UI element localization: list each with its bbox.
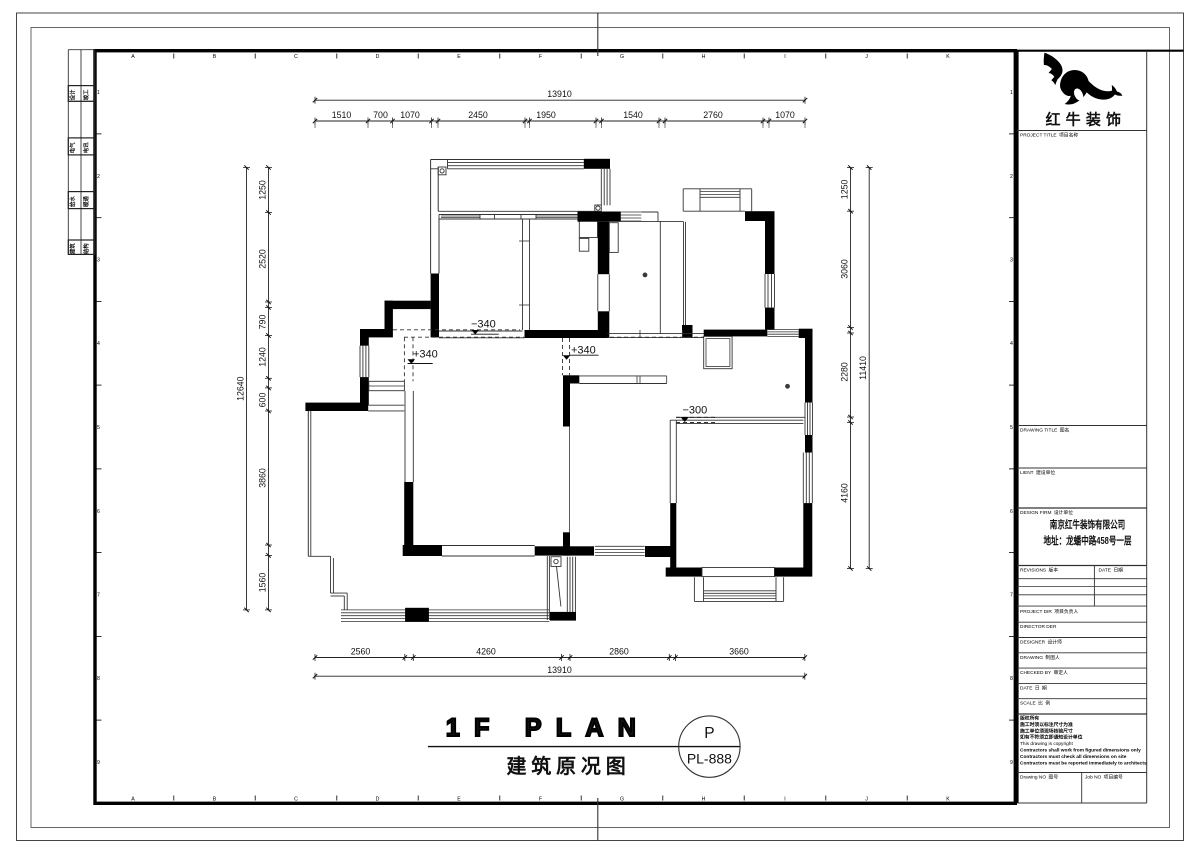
svg-text:Drawing NO 图号: Drawing NO 图号 xyxy=(1020,775,1058,781)
svg-text:7: 7 xyxy=(97,593,100,599)
svg-text:DRAWING TITLE 图名: DRAWING TITLE 图名 xyxy=(1020,427,1070,434)
svg-text:1: 1 xyxy=(97,90,100,96)
svg-text:+340: +340 xyxy=(571,344,596,356)
svg-text:红 牛 装 饰: 红 牛 装 饰 xyxy=(1045,111,1121,129)
svg-text:版权所有: 版权所有 xyxy=(1020,715,1039,722)
svg-text:2760: 2760 xyxy=(703,110,723,120)
svg-text:1540: 1540 xyxy=(623,110,643,120)
svg-text:600: 600 xyxy=(258,393,268,408)
svg-text:3: 3 xyxy=(97,258,100,264)
svg-text:2: 2 xyxy=(1010,174,1013,180)
svg-text:设计: 设计 xyxy=(69,89,77,100)
svg-text:1950: 1950 xyxy=(536,110,556,120)
svg-text:5: 5 xyxy=(97,425,100,431)
svg-text:I: I xyxy=(784,797,785,803)
svg-text:1250: 1250 xyxy=(840,180,850,200)
svg-text:3660: 3660 xyxy=(729,647,749,657)
svg-text:施工单位须现场核验尺寸: 施工单位须现场核验尺寸 xyxy=(1020,727,1073,734)
svg-text:4160: 4160 xyxy=(840,483,850,503)
svg-text:Contractors must be reported i: Contractors must be reported immediately… xyxy=(1020,760,1147,766)
svg-text:11410: 11410 xyxy=(858,356,868,380)
svg-text:C: C xyxy=(294,54,298,60)
svg-text:2280: 2280 xyxy=(840,362,850,382)
svg-text:1240: 1240 xyxy=(258,347,268,367)
svg-text:Contractors shall work from fi: Contractors shall work from figured dime… xyxy=(1020,748,1141,754)
svg-text:结构: 结构 xyxy=(82,243,90,254)
svg-text:700: 700 xyxy=(373,110,388,120)
svg-text:4260: 4260 xyxy=(476,647,496,657)
svg-text:2450: 2450 xyxy=(468,110,488,120)
svg-text:DIRECTOR DER: DIRECTOR DER xyxy=(1020,624,1057,630)
svg-text:E: E xyxy=(457,54,461,60)
svg-text:G: G xyxy=(620,797,624,803)
svg-text:如有不符须立即通知设计单位: 如有不符须立即通知设计单位 xyxy=(1020,734,1083,741)
svg-text:Job NO 项目编号: Job NO 项目编号 xyxy=(1085,774,1123,781)
svg-text:6: 6 xyxy=(97,509,100,515)
svg-text:DRAWING 制图人: DRAWING 制图人 xyxy=(1020,654,1060,661)
svg-text:8: 8 xyxy=(97,676,100,682)
svg-text:J: J xyxy=(865,797,868,803)
svg-text:PL-888: PL-888 xyxy=(687,751,732,767)
svg-text:1070: 1070 xyxy=(400,110,420,120)
svg-text:3060: 3060 xyxy=(840,259,850,279)
svg-text:F: F xyxy=(539,797,542,803)
svg-text:A: A xyxy=(131,797,135,803)
svg-text:G: G xyxy=(620,54,624,60)
svg-text:1: 1 xyxy=(1010,90,1013,96)
svg-text:1250: 1250 xyxy=(258,180,268,200)
svg-text:竣工: 竣工 xyxy=(82,89,90,100)
svg-text:D: D xyxy=(376,54,380,60)
svg-text:DESIGNER 设计师: DESIGNER 设计师 xyxy=(1020,639,1062,646)
svg-text:1F PLAN: 1F PLAN xyxy=(446,714,650,742)
svg-text:3860: 3860 xyxy=(258,468,268,488)
svg-text:790: 790 xyxy=(258,315,268,330)
svg-text:DESIGN FIRM 设计单位: DESIGN FIRM 设计单位 xyxy=(1020,509,1073,516)
svg-text:P: P xyxy=(704,725,714,742)
svg-text:LIENT 建设单位: LIENT 建设单位 xyxy=(1020,469,1055,476)
svg-text:2520: 2520 xyxy=(258,249,268,269)
svg-text:H: H xyxy=(702,797,706,803)
svg-text:12640: 12640 xyxy=(236,376,246,401)
svg-text:2860: 2860 xyxy=(609,647,629,657)
svg-text:1070: 1070 xyxy=(775,110,795,120)
svg-text:B: B xyxy=(213,54,217,60)
svg-text:−300: −300 xyxy=(683,405,708,417)
svg-text:4: 4 xyxy=(97,341,100,347)
svg-text:5: 5 xyxy=(1010,425,1013,431)
svg-text:REVISIONS 版本: REVISIONS 版本 xyxy=(1020,567,1058,574)
svg-text:F: F xyxy=(539,54,542,60)
svg-text:电讯: 电讯 xyxy=(82,142,90,153)
svg-text:南京红牛装饰有限公司: 南京红牛装饰有限公司 xyxy=(1050,518,1125,531)
svg-text:9: 9 xyxy=(97,760,100,766)
svg-text:This drawing is copyright: This drawing is copyright xyxy=(1020,741,1073,747)
svg-text:建筑: 建筑 xyxy=(69,243,77,255)
svg-text:B: B xyxy=(213,797,217,803)
svg-text:2: 2 xyxy=(97,174,100,180)
svg-text:DATE 日期: DATE 日期 xyxy=(1099,568,1124,574)
svg-text:7: 7 xyxy=(1010,593,1013,599)
svg-text:SCALE 比 例: SCALE 比 例 xyxy=(1020,700,1050,707)
svg-text:C: C xyxy=(294,797,298,803)
svg-text:H: H xyxy=(702,54,706,60)
svg-text:6: 6 xyxy=(1010,509,1013,515)
svg-text:D: D xyxy=(376,797,380,803)
svg-text:3: 3 xyxy=(1010,258,1013,264)
svg-text:I: I xyxy=(784,54,785,60)
svg-text:Contractors must check all dim: Contractors must check all dimensions on… xyxy=(1020,754,1127,760)
svg-text:A: A xyxy=(131,54,135,60)
svg-text:地址：龙蟠中路458号一层: 地址：龙蟠中路458号一层 xyxy=(1044,534,1132,547)
svg-text:K: K xyxy=(946,797,950,803)
svg-text:给水: 给水 xyxy=(69,196,77,207)
svg-text:CHECKED BY 审定人: CHECKED BY 审定人 xyxy=(1020,669,1068,676)
svg-text:−340: −340 xyxy=(471,319,496,331)
svg-text:13910: 13910 xyxy=(547,665,572,675)
svg-text:4: 4 xyxy=(1010,341,1013,347)
svg-text:8: 8 xyxy=(1010,676,1013,682)
svg-text:2560: 2560 xyxy=(351,647,371,657)
svg-text:J: J xyxy=(865,54,868,60)
svg-text:施工时须以标注尺寸为准: 施工时须以标注尺寸为准 xyxy=(1020,721,1073,728)
svg-text:E: E xyxy=(457,797,461,803)
svg-text:暖通: 暖通 xyxy=(82,196,90,207)
svg-text:1560: 1560 xyxy=(258,573,268,593)
svg-text:电气: 电气 xyxy=(69,142,77,153)
svg-text:+340: +340 xyxy=(413,349,438,361)
svg-text:建筑原况图: 建筑原况图 xyxy=(507,754,631,778)
svg-text:1510: 1510 xyxy=(332,110,352,120)
svg-text:K: K xyxy=(946,54,950,60)
svg-text:PROJECT DIR 项目负责人: PROJECT DIR 项目负责人 xyxy=(1020,608,1078,615)
svg-text:13910: 13910 xyxy=(547,89,572,99)
svg-text:DATE 日 期: DATE 日 期 xyxy=(1020,685,1047,691)
svg-text:PROJECT TITLE 项目名称: PROJECT TITLE 项目名称 xyxy=(1020,132,1078,139)
svg-text:9: 9 xyxy=(1010,760,1013,766)
